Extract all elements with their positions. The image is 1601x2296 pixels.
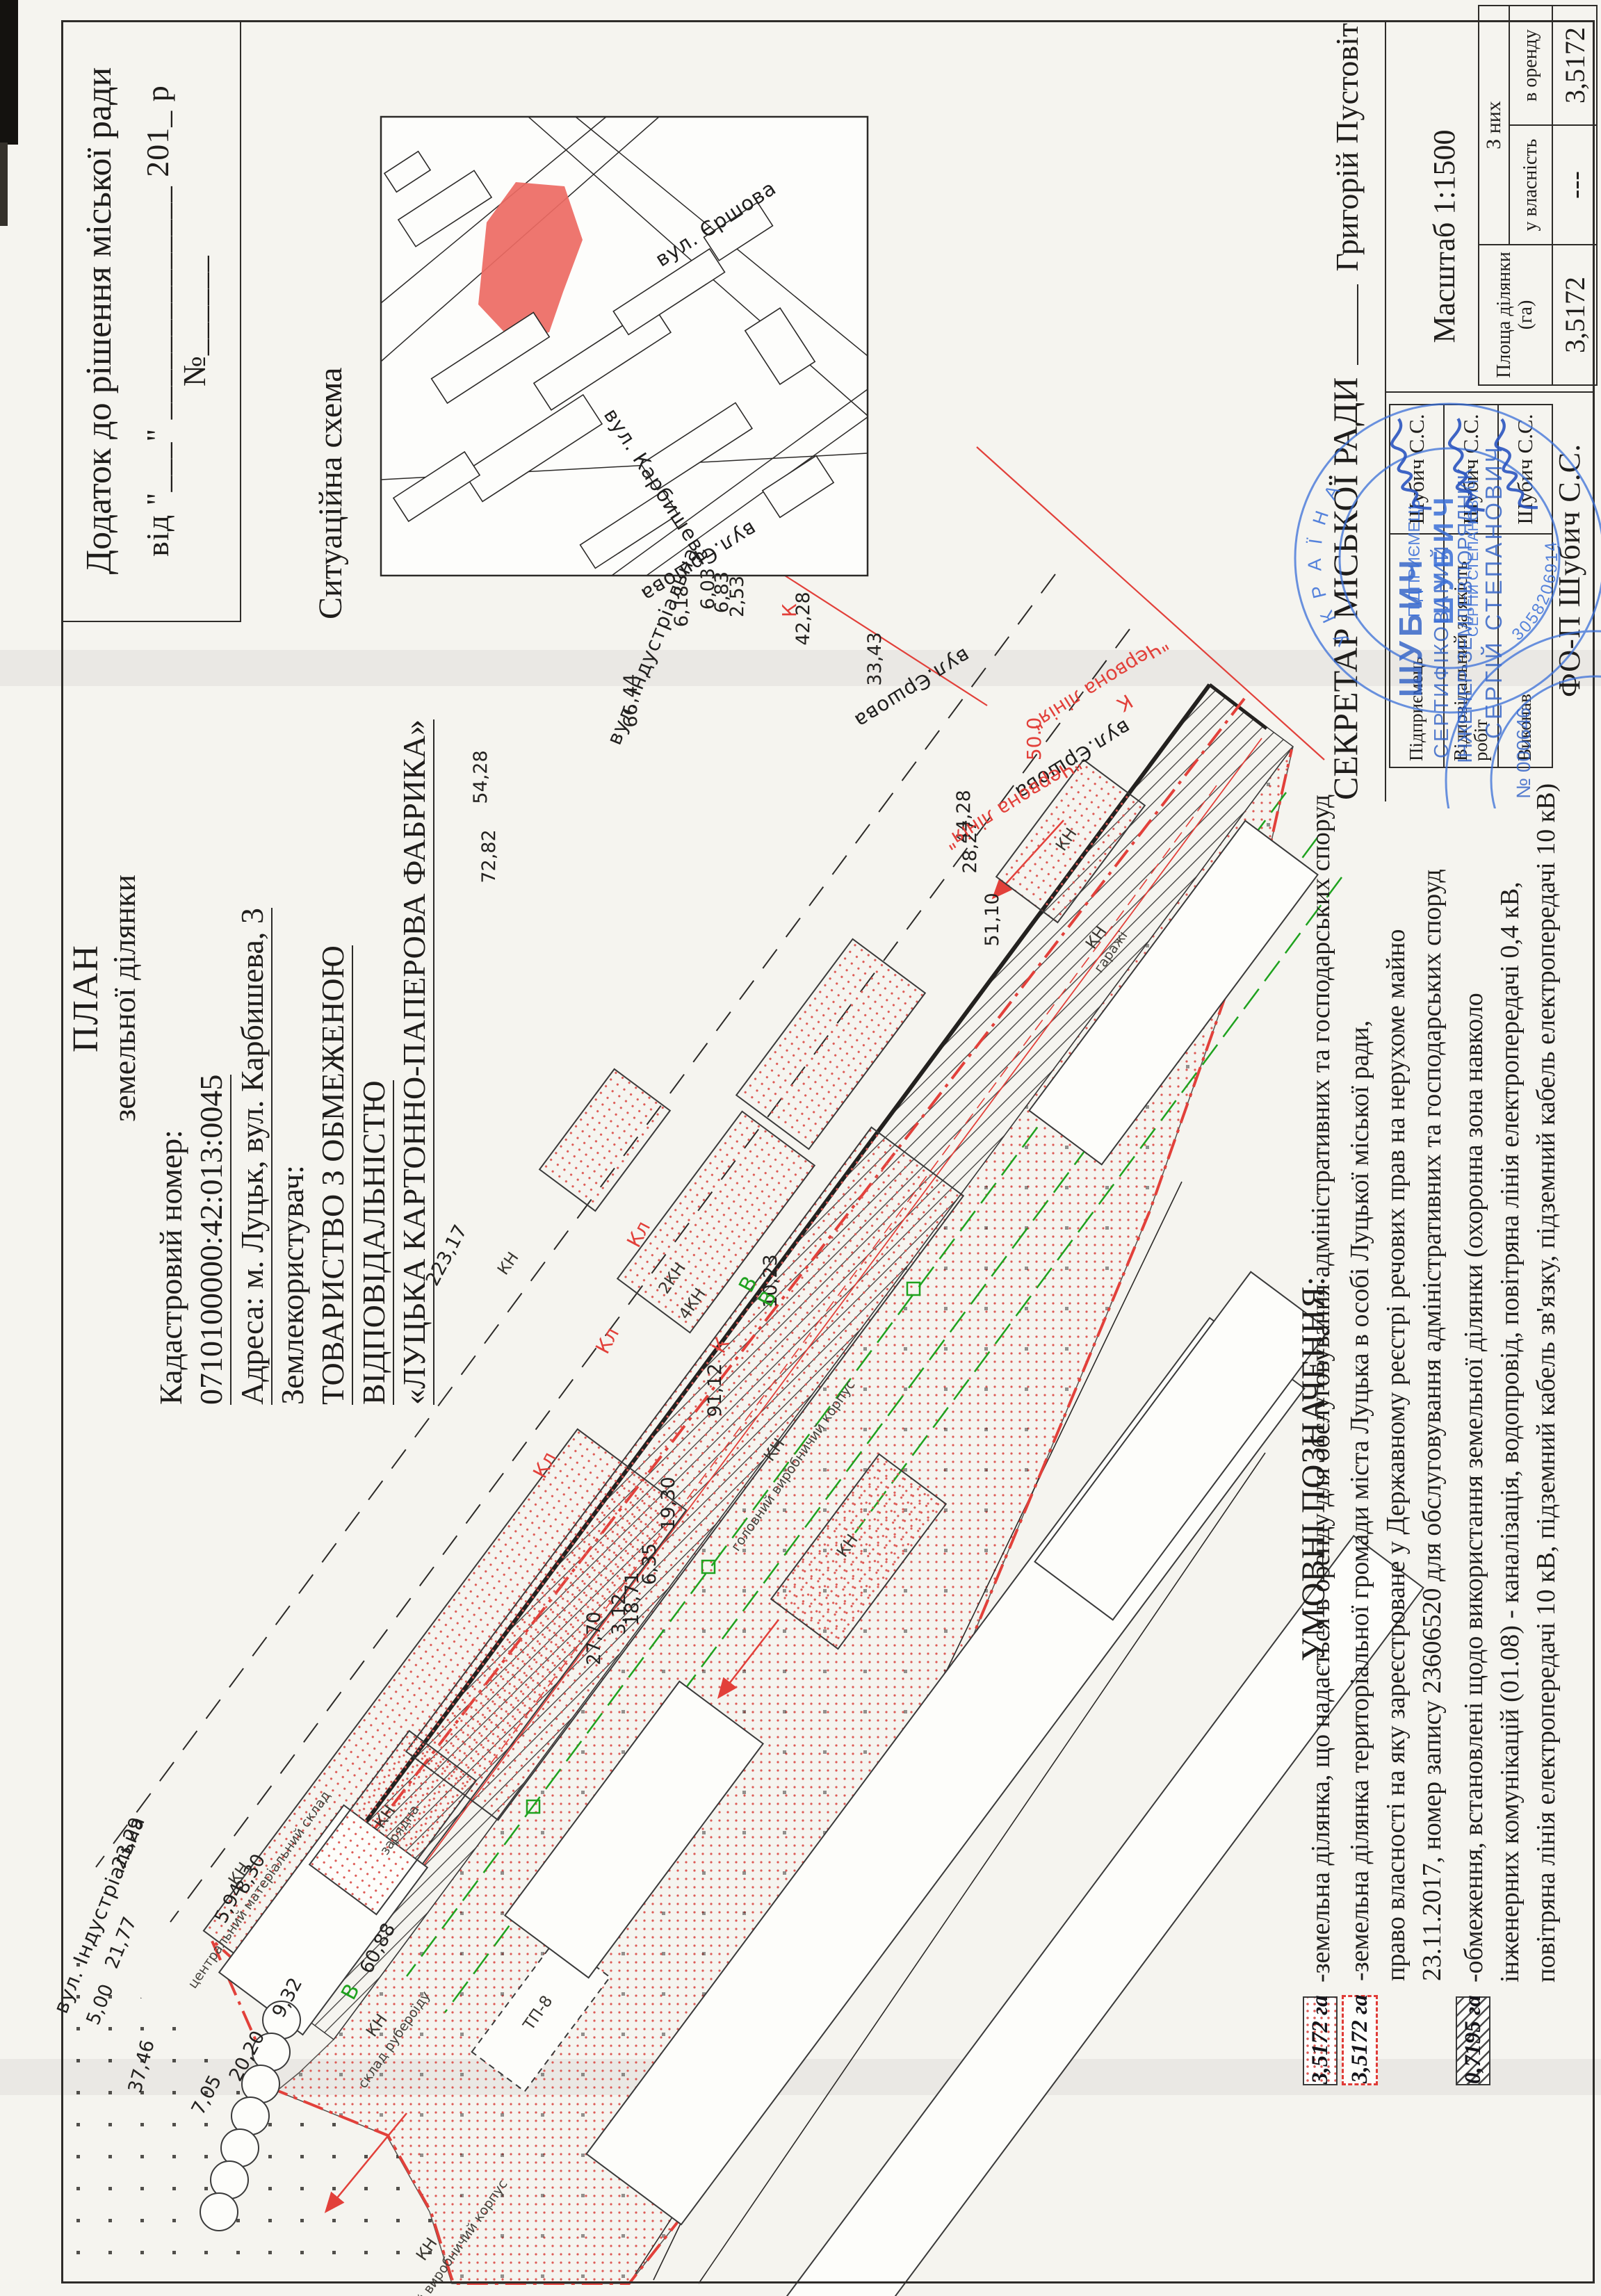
landuser-label: Землекористувач:: [275, 592, 311, 1405]
stamp-code-arc: 3058206914: [1509, 539, 1561, 644]
cadastral-number: 0710100000:42:013:0045: [193, 1075, 231, 1405]
company-line-2: ВІДПОВІДАЛЬНІСТЮ: [356, 1080, 394, 1405]
company-line-1: ТОВАРИСТВО З ОБМЕЖЕНОЮ: [315, 945, 353, 1405]
stamp-country-text: У К Р А Ї Н А: [1304, 478, 1354, 650]
legend-text: повітряна лінія електропередачі 10 кВ, п…: [1528, 783, 1564, 1982]
address-line: Адреса: м. Луцьк, вул. Карбишева, 3: [234, 908, 273, 1405]
situational-scheme-label: Ситуаційна схема: [311, 367, 350, 619]
legend-text: інженерних комунікацій (01.08) - каналіз…: [1492, 783, 1528, 1982]
appendix-title: Додаток до рішення міської ради: [79, 21, 120, 621]
legend-item-lease: 3,5172 га -земельна ділянка, що надаєтьс…: [1303, 795, 1339, 2085]
legend-swatch-hatch: 0,7195 га: [1456, 1996, 1490, 2085]
document-rotated-layer: Додаток до рішення міської ради від "___…: [0, 0, 1601, 2296]
title-block: ПЛАН земельної ділянки Кадастровий номер…: [65, 592, 433, 1405]
stamp-surname: ШУБИЧ: [1429, 492, 1459, 625]
plan-title: ПЛАН: [65, 592, 106, 1405]
legend-text: право власності на яку зареєстроване у Д…: [1378, 869, 1414, 1981]
legend-item-restrictions: 0,7195 га -обмеження, встановлені щодо в…: [1456, 783, 1564, 2085]
round-stamps: У К Р А Ї Н А 3058206914 ПІДПРИЄМЕЦЬ ШУБ…: [1244, 9, 1601, 808]
company-line-3: «ЛУЦЬКА КАРТОННО-ПАПЕРОВА ФАБРИКА»: [396, 719, 434, 1405]
legend-swatch-red-dash-dot: 3,5172 га: [1342, 1995, 1378, 2085]
appendix-box: Додаток до рішення міської ради від "___…: [63, 21, 241, 622]
stamp-role: ПІДПРИЄМЕЦЬ: [1405, 499, 1423, 617]
stamp-code-text: 3058206914: [1509, 539, 1561, 644]
legend-swatch-red-dots: 3,5172 га: [1303, 1996, 1338, 2085]
plan-subtitle: земельної ділянки: [106, 592, 143, 1405]
stamp-country-arc: У К Р А Ї Н А: [1304, 478, 1354, 650]
legend-text: -земельна ділянка територіальної громади…: [1342, 869, 1378, 1981]
cadastral-label: Кадастровий номер:: [153, 592, 189, 1405]
legend-text: 23.11.2017, номер запису 23606520 для об…: [1414, 869, 1450, 1981]
legend-item-municipal: 3,5172 га -земельна ділянка територіальн…: [1342, 869, 1450, 2085]
scanned-land-plan-page: 66,446,186,036,832,5342,2833,4354,2872,8…: [0, 0, 1601, 2296]
legend-text: -обмеження, встановлені щодо використанн…: [1456, 783, 1492, 1982]
legend-text: -земельна ділянка, що надається в оренду…: [1303, 795, 1339, 1982]
appendix-date-line: від "___" ______________ 201_ р №______: [139, 21, 213, 621]
